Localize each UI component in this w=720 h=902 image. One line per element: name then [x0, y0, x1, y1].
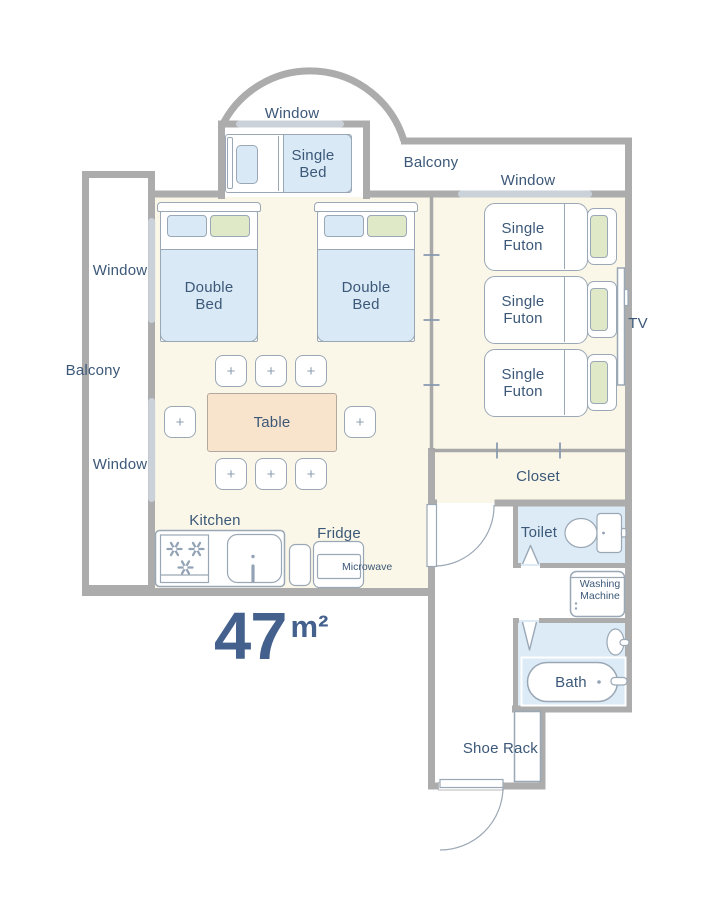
- chair: +: [215, 355, 247, 387]
- single-futon-2-label: Single Futon: [493, 293, 553, 327]
- double-bed-1-pillow-green: [210, 215, 250, 237]
- left-window-bottom-label: Window: [80, 456, 160, 473]
- hallway-door-swing-arc: [436, 505, 494, 566]
- tv-bracket: [625, 290, 629, 306]
- kitchen-label: Kitchen: [175, 512, 255, 529]
- chair-mark: +: [267, 466, 276, 483]
- floor-plan-drawing: [0, 0, 720, 902]
- chair-mark: +: [267, 363, 276, 380]
- toilet-tank-icon: [597, 514, 622, 553]
- table-label: Table: [254, 414, 291, 431]
- double-bed-1-label: Double Bed: [179, 279, 239, 313]
- toilet-button-dot: [602, 532, 605, 535]
- closet-label: Closet: [498, 468, 578, 485]
- sink-drain-dot: [251, 555, 254, 558]
- double-bed-2-pillow-blue: [324, 215, 364, 237]
- floor-plan: Single Bed Double Bed Double Bed Single …: [0, 0, 720, 902]
- dining-table: Table: [207, 393, 337, 452]
- floor-area-unit: m²: [291, 609, 329, 645]
- chair: +: [255, 458, 287, 490]
- chair: +: [215, 458, 247, 490]
- stove-burner-center: [184, 566, 188, 570]
- single-futon-2-pillow: [590, 288, 608, 331]
- chair: +: [164, 406, 196, 438]
- left-balcony-walls: [86, 175, 152, 589]
- bathtub-tap-icon: [611, 678, 627, 686]
- chair-mark: +: [227, 466, 236, 483]
- entrance-door-leaf: [440, 780, 503, 788]
- toilet-flush-knob: [622, 529, 627, 538]
- single-bed-sheet-fold: [278, 136, 279, 191]
- floor-area-value: 47: [214, 599, 287, 674]
- chair: +: [295, 458, 327, 490]
- bathroom-sink-tap: [620, 640, 629, 646]
- chair-mark: +: [176, 414, 185, 431]
- floor-area: 47m²: [214, 603, 328, 670]
- bay-window-label: Window: [252, 105, 332, 122]
- entrance-door-swing-arc: [440, 787, 503, 850]
- left-window-bottom-icon: [148, 398, 155, 502]
- single-bed-headboard: [227, 137, 233, 189]
- single-futon-1-pillow: [590, 215, 608, 258]
- hallway-door-leaf: [427, 505, 437, 567]
- single-futon-2-fold: [564, 277, 565, 342]
- single-bed-pillow: [236, 145, 258, 184]
- bath-label: Bath: [536, 674, 606, 691]
- futon-room-window-icon: [458, 191, 592, 198]
- futon-window-label: Window: [488, 172, 568, 189]
- stove-burner-center: [173, 547, 177, 551]
- single-futon-1-fold: [564, 204, 565, 269]
- single-futon-3-pillow: [590, 361, 608, 404]
- chair-mark: +: [227, 363, 236, 380]
- double-bed-2-pillow-green: [367, 215, 407, 237]
- kitchen-cabinet: [290, 545, 311, 586]
- microwave-label: Microwave: [342, 561, 412, 573]
- washing-machine-knob-dot: [575, 607, 577, 609]
- stove-burner-center: [195, 547, 199, 551]
- single-bed-label: Single Bed: [283, 147, 343, 181]
- washing-machine-label: Washing Machine: [572, 578, 628, 602]
- single-futon-3-label: Single Futon: [493, 366, 553, 400]
- chair-mark: +: [356, 414, 365, 431]
- double-bed-1-pillow-blue: [167, 215, 207, 237]
- balcony-top-label: Balcony: [399, 154, 463, 171]
- shoe-rack-label: Shoe Rack: [438, 740, 538, 757]
- chair: +: [255, 355, 287, 387]
- balcony-left-label: Balcony: [53, 362, 133, 379]
- chair-mark: +: [307, 466, 316, 483]
- single-futon-1-label: Single Futon: [493, 220, 553, 254]
- tv-label: TV: [620, 315, 656, 332]
- single-futon-3-fold: [564, 350, 565, 415]
- chair: +: [344, 406, 376, 438]
- washing-machine-knob-dot: [575, 602, 577, 604]
- fridge-label: Fridge: [299, 525, 379, 542]
- left-window-top-label: Window: [80, 262, 160, 279]
- double-bed-2-label: Double Bed: [336, 279, 396, 313]
- chair: +: [295, 355, 327, 387]
- chair-mark: +: [307, 363, 316, 380]
- toilet-label: Toilet: [506, 524, 572, 541]
